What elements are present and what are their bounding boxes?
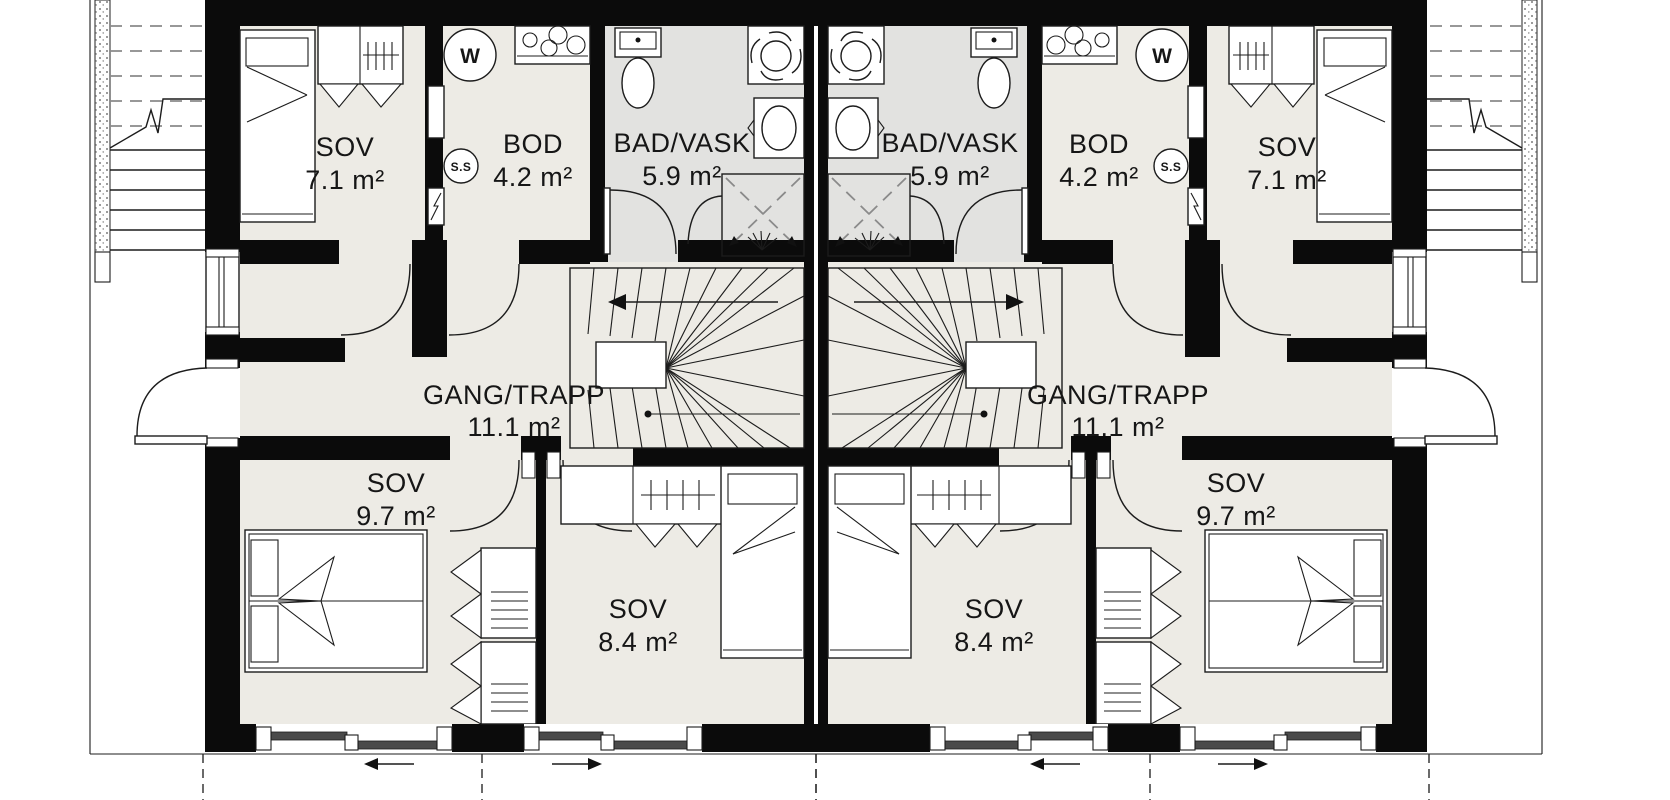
room-area-bad-left: 5.9 m² [642, 161, 722, 191]
room-area-bod-left: 4.2 m² [493, 162, 573, 192]
room-area-gang-right: 11.1 m² [1071, 412, 1164, 442]
room-label-bad-right: BAD/VASK [881, 128, 1018, 158]
fuse-box-label-right: S.S [1161, 160, 1182, 174]
room-area-bod-right: 4.2 m² [1059, 162, 1139, 192]
floor-plan-svg: SOV 7.1 m² BOD 4.2 m² BAD/VASK 5.9 m² GA… [0, 0, 1670, 800]
room-label-sov71-right: SOV [1258, 132, 1317, 162]
room-label-bod-right: BOD [1069, 129, 1129, 159]
room-label-gang-left: GANG/TRAPP [423, 380, 605, 410]
room-label-sov71-left: SOV [316, 132, 375, 162]
floor-plan-page: SOV 7.1 m² BOD 4.2 m² BAD/VASK 5.9 m² GA… [0, 0, 1670, 800]
room-label-gang-right: GANG/TRAPP [1027, 380, 1209, 410]
room-area-bad-right: 5.9 m² [910, 161, 990, 191]
room-label-sov84-right: SOV [965, 594, 1024, 624]
room-area-sov97-left: 9.7 m² [356, 501, 436, 531]
room-label-bod-left: BOD [503, 129, 563, 159]
room-label-sov97-right: SOV [1207, 468, 1266, 498]
room-area-sov71-left: 7.1 m² [305, 165, 385, 195]
room-area-sov97-right: 9.7 m² [1196, 501, 1276, 531]
room-area-gang-left: 11.1 m² [467, 412, 560, 442]
room-label-sov84-left: SOV [609, 594, 668, 624]
fuse-box-label-left: S.S [451, 160, 472, 174]
washing-machine-label-left: W [460, 45, 480, 68]
room-label-sov97-left: SOV [367, 468, 426, 498]
room-area-sov84-right: 8.4 m² [954, 627, 1034, 657]
room-area-sov84-left: 8.4 m² [598, 627, 678, 657]
room-label-bad-left: BAD/VASK [613, 128, 750, 158]
washing-machine-label-right: W [1152, 45, 1172, 68]
room-area-sov71-right: 7.1 m² [1247, 165, 1327, 195]
